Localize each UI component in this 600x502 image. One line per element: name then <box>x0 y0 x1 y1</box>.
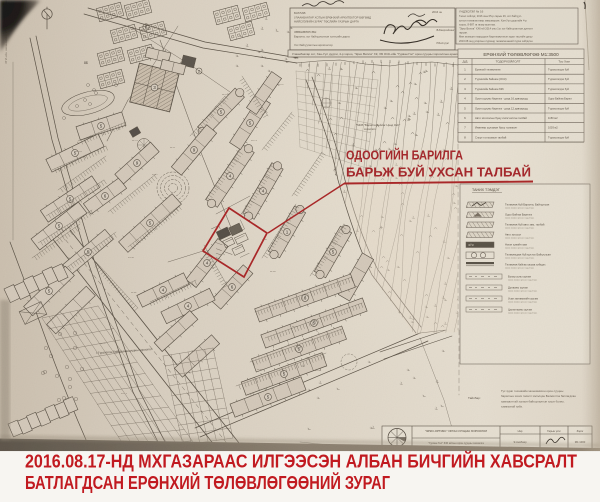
svg-text:БАТЛАГДСАН ЕРӨНХИЙ ТӨЛӨВЛӨГӨӨН: БАТЛАГДСАН ЕРӨНХИЙ ТӨЛӨВЛӨГӨӨНИЙ ЗУРАГ <box>25 472 390 493</box>
svg-text:2016.08.17-НД МХГАЗАРААС ИЛГЭЭ: 2016.08.17-НД МХГАЗАРААС ИЛГЭЭСЭН АЛБАН … <box>25 451 577 472</box>
